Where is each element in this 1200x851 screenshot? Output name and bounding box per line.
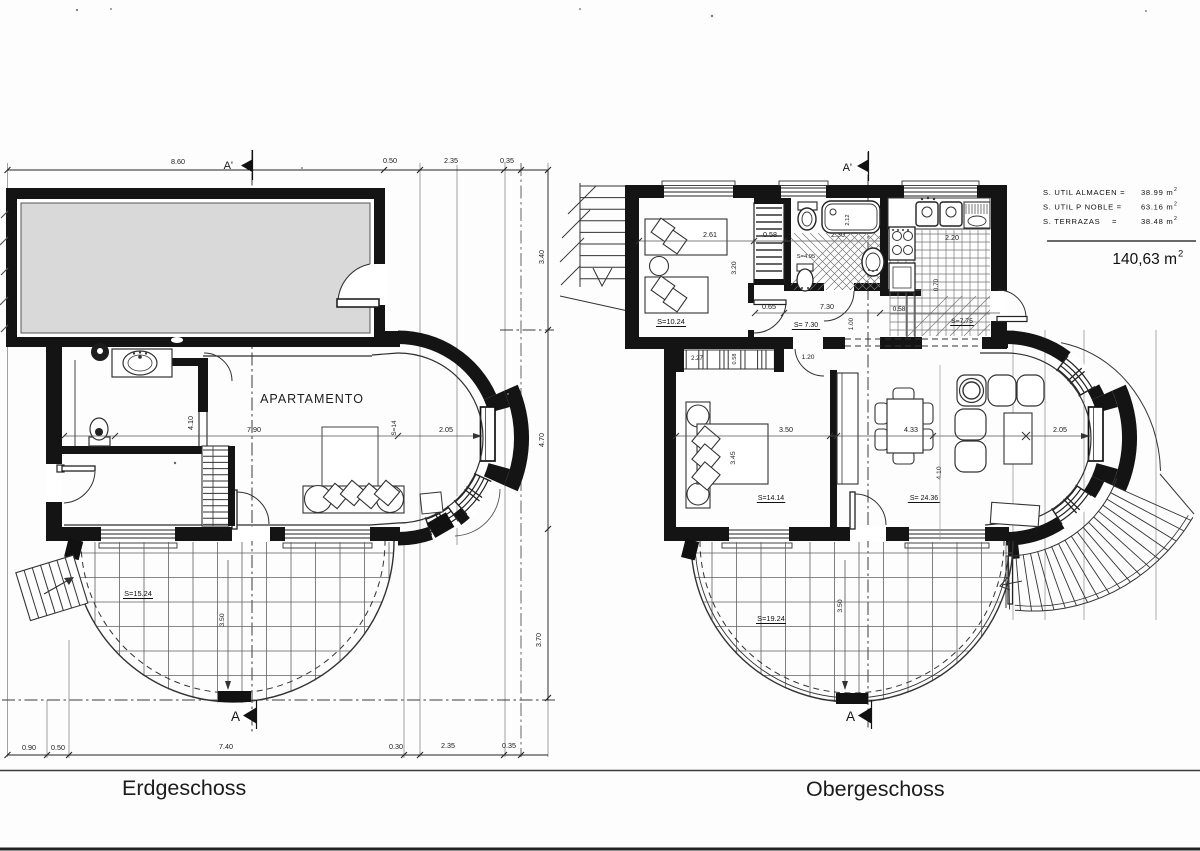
svg-text:S. UTIL ALMACEN =: S. UTIL ALMACEN = <box>1043 188 1125 197</box>
svg-text:0.50: 0.50 <box>383 156 397 165</box>
svg-text:38.48 m: 38.48 m <box>1141 217 1173 226</box>
svg-text:A': A' <box>224 160 233 172</box>
svg-text:2: 2 <box>1178 249 1183 260</box>
svg-text:3.50: 3.50 <box>219 613 226 626</box>
svg-text:S. TERRAZAS: S. TERRAZAS <box>1043 217 1100 226</box>
svg-text:APARTAMENTO: APARTAMENTO <box>260 392 364 406</box>
svg-text:3.50: 3.50 <box>779 425 793 434</box>
svg-text:S=19.24: S=19.24 <box>757 614 785 623</box>
svg-text:2.20: 2.20 <box>945 233 959 242</box>
svg-text:S=10.24: S=10.24 <box>657 317 685 326</box>
svg-text:Erdgeschoss: Erdgeschoss <box>122 776 246 800</box>
svg-text:4.10: 4.10 <box>186 416 195 430</box>
svg-text:1.20: 1.20 <box>802 354 815 361</box>
svg-text:Obergeschoss: Obergeschoss <box>806 777 945 801</box>
svg-text:2.12: 2.12 <box>845 214 851 225</box>
svg-text:7.40: 7.40 <box>219 742 233 751</box>
svg-text:0.70: 0.70 <box>933 278 940 291</box>
svg-text:0.65: 0.65 <box>762 302 776 311</box>
svg-text:0.35: 0.35 <box>502 741 516 750</box>
svg-text:3.40: 3.40 <box>537 250 546 264</box>
svg-text:4.70: 4.70 <box>537 433 546 447</box>
svg-text:S=14.14: S=14.14 <box>758 495 784 502</box>
svg-text:S=7.75: S=7.75 <box>951 318 973 325</box>
svg-text:0.35: 0.35 <box>500 156 514 165</box>
svg-text:S=15.24: S=15.24 <box>124 589 152 598</box>
svg-text:0.50: 0.50 <box>51 743 65 752</box>
svg-text:0.58: 0.58 <box>732 354 738 365</box>
svg-text:2: 2 <box>1174 202 1177 208</box>
svg-text:63.16 m: 63.16 m <box>1141 203 1173 212</box>
svg-text:4.33: 4.33 <box>904 425 918 434</box>
svg-text:S. UTIL P NOBLE =: S. UTIL P NOBLE = <box>1043 203 1122 212</box>
svg-text:3.20: 3.20 <box>731 261 738 274</box>
svg-text:4.10: 4.10 <box>936 466 943 479</box>
svg-text:2.27: 2.27 <box>691 356 703 362</box>
svg-text:3.70: 3.70 <box>534 633 543 647</box>
svg-text:0.90: 0.90 <box>22 743 36 752</box>
svg-text:1.00: 1.00 <box>848 317 855 330</box>
svg-text:7.30: 7.30 <box>820 302 834 311</box>
svg-text:0.58: 0.58 <box>893 306 906 313</box>
svg-text:S= 7.30: S= 7.30 <box>794 322 818 329</box>
svg-text:0.58: 0.58 <box>763 230 777 239</box>
svg-text:A: A <box>231 709 240 724</box>
svg-text:140,63 m: 140,63 m <box>1112 251 1177 268</box>
svg-text:2.35: 2.35 <box>441 741 455 750</box>
svg-text:7.90: 7.90 <box>247 425 261 434</box>
svg-text:S=14: S=14 <box>391 420 398 436</box>
svg-text:0.30: 0.30 <box>389 742 403 751</box>
svg-text:8.60: 8.60 <box>171 157 185 166</box>
svg-text:2.05: 2.05 <box>1053 425 1067 434</box>
svg-text:=: = <box>1112 217 1117 226</box>
svg-text:S=4.95: S=4.95 <box>797 254 816 260</box>
svg-text:38.99 m: 38.99 m <box>1141 188 1173 197</box>
svg-text:2: 2 <box>1174 216 1177 222</box>
svg-text:2: 2 <box>1174 187 1177 193</box>
svg-text:2.61: 2.61 <box>703 230 717 239</box>
svg-text:3.45: 3.45 <box>730 451 737 464</box>
svg-text:A: A <box>846 709 855 724</box>
svg-text:2.35: 2.35 <box>444 156 458 165</box>
svg-text:S= 24.36: S= 24.36 <box>910 495 938 502</box>
svg-text:A': A' <box>843 162 852 174</box>
svg-text:2.05: 2.05 <box>439 425 453 434</box>
svg-text:3.50: 3.50 <box>837 599 844 612</box>
